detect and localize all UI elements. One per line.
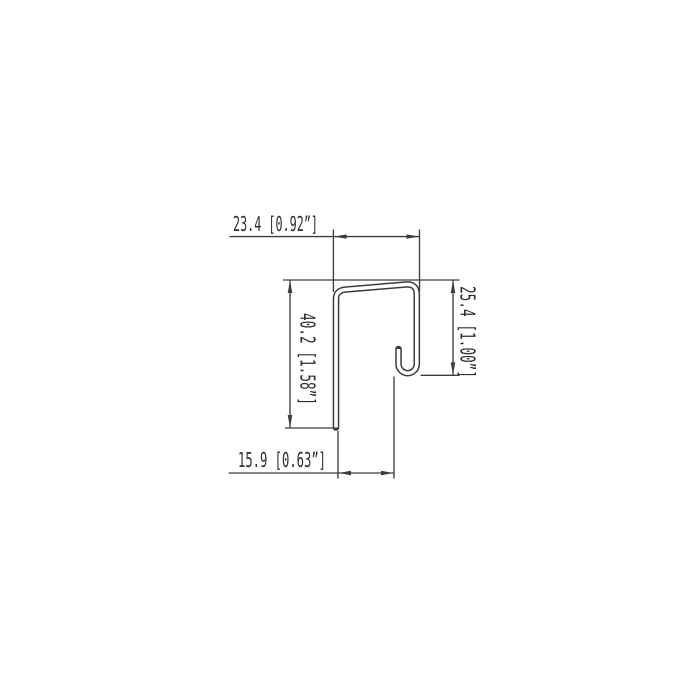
profile-outline xyxy=(336,284,417,427)
drawing-canvas: 23.4 [0.92”] 40.2 [1.58”] 25.4 [1.00”] 1… xyxy=(0,0,700,700)
arrowhead-left-bottom xyxy=(288,415,293,427)
bottom-width-label: 15.9 [0.63”] xyxy=(238,448,326,472)
arrowhead-top-left xyxy=(334,234,347,238)
dimension-lines xyxy=(229,230,460,479)
j-profile-section xyxy=(336,284,417,427)
arrowhead-top-right xyxy=(407,234,420,238)
right-height-label: 25.4 [1.00”] xyxy=(456,286,480,378)
arrowhead-left-top xyxy=(288,281,293,293)
arrowhead-right-top xyxy=(451,281,456,293)
dimension-labels: 23.4 [0.92”] 40.2 [1.58”] 25.4 [1.00”] 1… xyxy=(233,212,480,472)
profile-dimension-drawing: 23.4 [0.92”] 40.2 [1.58”] 25.4 [1.00”] 1… xyxy=(0,0,700,700)
arrowhead-bottom-left xyxy=(339,471,351,475)
arrowhead-bottom-right xyxy=(381,471,393,475)
left-height-label: 40.2 [1.58”] xyxy=(296,313,320,405)
top-width-label: 23.4 [0.92”] xyxy=(233,212,318,236)
arrowhead-right-bottom xyxy=(451,362,456,374)
profile-core xyxy=(336,284,417,427)
